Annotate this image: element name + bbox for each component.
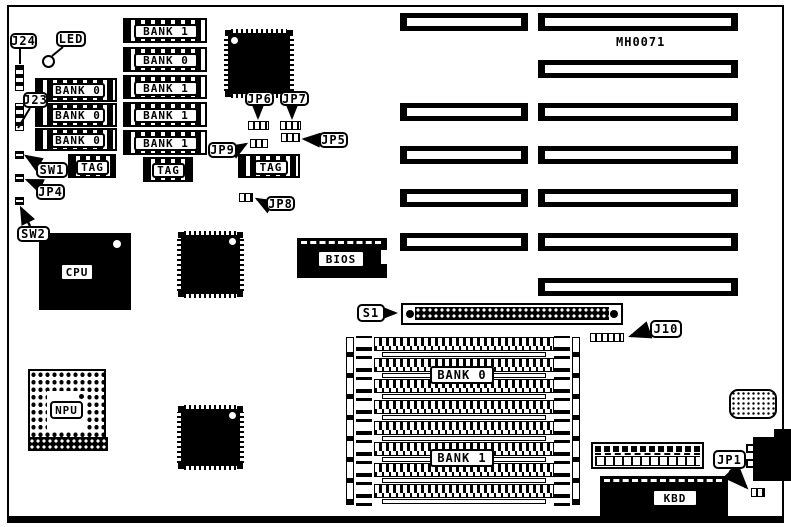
kbd-notch-line bbox=[604, 479, 722, 482]
bank1-array-label: BANK 1 bbox=[430, 449, 494, 467]
simm-body bbox=[382, 394, 546, 399]
din-connector bbox=[753, 437, 791, 481]
array-latches-left bbox=[356, 336, 372, 506]
array-edge-right bbox=[572, 337, 580, 505]
pin1-dot bbox=[79, 394, 84, 399]
cpu-label: CPU bbox=[60, 263, 94, 281]
simm-label: BANK 0 bbox=[51, 133, 105, 148]
callout-j23: J23 bbox=[23, 92, 48, 108]
slot-short-2 bbox=[400, 103, 528, 121]
callout-sw2: SW2 bbox=[17, 226, 50, 242]
simm-body bbox=[382, 478, 546, 483]
j10-connector bbox=[590, 333, 624, 342]
simm-socket: BANK 0 bbox=[123, 47, 207, 72]
callout-sw1: SW1 bbox=[36, 162, 68, 178]
simm-label: BANK 1 bbox=[134, 136, 198, 151]
callout-jp9: JP9 bbox=[208, 142, 237, 158]
tag-label: TAG bbox=[152, 163, 185, 178]
jp1-jumper bbox=[751, 488, 765, 497]
callout-jp6: JP6 bbox=[245, 91, 274, 106]
s1-end-pin bbox=[610, 310, 618, 318]
slot-long-5 bbox=[538, 189, 738, 207]
callout-j10: J10 bbox=[650, 320, 682, 338]
sw2-switch bbox=[15, 197, 24, 205]
simm-row bbox=[374, 337, 554, 351]
slot-long-7 bbox=[538, 278, 738, 296]
slot-short-3 bbox=[400, 146, 528, 164]
jp7-jumper bbox=[280, 121, 301, 130]
motherboard-diagram: MH0071 BANK 0 BANK 0 BANK 0 BANK 1 BANK … bbox=[0, 0, 791, 527]
qfp-chip-1 bbox=[225, 30, 293, 97]
jp9-jumper bbox=[250, 139, 268, 148]
simm-body bbox=[382, 352, 546, 357]
bank0-array-label: BANK 0 bbox=[430, 366, 494, 384]
power-pins-top bbox=[595, 446, 700, 452]
bios-chip: BIOS bbox=[297, 238, 387, 278]
simm-socket: BANK 1 bbox=[123, 18, 207, 43]
npu-label: NPU bbox=[50, 401, 83, 419]
bios-side-notch bbox=[381, 250, 388, 264]
power-pins-bottom bbox=[595, 456, 700, 466]
bios-label: BIOS bbox=[317, 250, 365, 268]
pin1-dot bbox=[231, 37, 238, 44]
pin1-dot bbox=[229, 238, 236, 245]
simm-socket: BANK 1 bbox=[123, 102, 207, 127]
callout-jp7: JP7 bbox=[280, 91, 309, 106]
tag-label: TAG bbox=[254, 160, 288, 175]
qfp-chip-2 bbox=[178, 232, 243, 297]
j24-pin-header bbox=[15, 65, 24, 91]
part-number: MH0071 bbox=[616, 35, 665, 49]
simm-label: BANK 0 bbox=[51, 108, 105, 123]
jp5-jumper bbox=[281, 133, 300, 142]
array-latches-right bbox=[554, 336, 570, 506]
bios-notch-line bbox=[301, 241, 381, 244]
oscillator bbox=[729, 389, 777, 419]
slot-long-4 bbox=[538, 146, 738, 164]
cpu-chip: CPU bbox=[39, 233, 131, 310]
s1-end-pin bbox=[406, 310, 414, 318]
callout-j24: J24 bbox=[10, 33, 37, 49]
array-edge-left bbox=[346, 337, 354, 505]
simm-label: BANK 1 bbox=[134, 24, 198, 39]
sw1-switch bbox=[15, 151, 24, 159]
tag-socket: TAG bbox=[238, 154, 300, 178]
slot-short-1 bbox=[400, 13, 528, 31]
s1-connector bbox=[401, 303, 623, 325]
simm-row bbox=[374, 400, 554, 414]
simm-body bbox=[382, 499, 546, 504]
slot-short-5 bbox=[400, 233, 528, 251]
pin1-dot bbox=[229, 412, 236, 419]
simm-socket: BANK 1 bbox=[123, 75, 207, 99]
simm-label: BANK 0 bbox=[134, 53, 198, 68]
simm-label: BANK 0 bbox=[51, 83, 105, 98]
simm-body bbox=[382, 415, 546, 420]
callout-led: LED bbox=[56, 31, 86, 47]
callout-jp4: JP4 bbox=[36, 184, 65, 200]
pin1-dot bbox=[113, 240, 121, 248]
simm-label: BANK 1 bbox=[134, 108, 198, 123]
simm-row bbox=[374, 421, 554, 435]
j23-pin-header bbox=[15, 103, 24, 131]
jp8-jumper bbox=[239, 193, 253, 202]
slot-long-2 bbox=[538, 60, 738, 78]
power-connector bbox=[591, 442, 704, 469]
power-divider bbox=[595, 453, 700, 455]
tag-socket: TAG bbox=[68, 154, 116, 178]
din-pin bbox=[746, 459, 755, 468]
jp6-jumper bbox=[248, 121, 269, 130]
tag-socket: TAG bbox=[143, 157, 193, 182]
kbd-chip: KBD bbox=[600, 476, 728, 517]
slot-long-1 bbox=[538, 13, 738, 31]
slot-long-3 bbox=[538, 103, 738, 121]
callout-jp1: JP1 bbox=[713, 450, 746, 469]
tag-label: TAG bbox=[76, 160, 109, 175]
callout-jp5: JP5 bbox=[319, 132, 348, 148]
kbd-label: KBD bbox=[652, 489, 698, 507]
simm-row bbox=[374, 484, 554, 498]
din-pin bbox=[746, 444, 755, 453]
slot-long-6 bbox=[538, 233, 738, 251]
simm-socket: BANK 1 bbox=[123, 130, 207, 155]
s1-pin-grid bbox=[415, 307, 609, 320]
simm-body bbox=[382, 436, 546, 441]
simm-socket: BANK 0 bbox=[35, 128, 117, 151]
led-indicator bbox=[42, 55, 55, 68]
jp4-jumper bbox=[15, 174, 24, 182]
simm-label: BANK 1 bbox=[134, 81, 198, 96]
bottom-left-header bbox=[28, 437, 108, 451]
simm-array: BANK 0 BANK 1 bbox=[346, 336, 588, 506]
slot-short-4 bbox=[400, 189, 528, 207]
qfp-chip-3 bbox=[178, 406, 243, 469]
callout-s1: S1 bbox=[357, 304, 385, 322]
callout-jp8: JP8 bbox=[266, 196, 295, 211]
